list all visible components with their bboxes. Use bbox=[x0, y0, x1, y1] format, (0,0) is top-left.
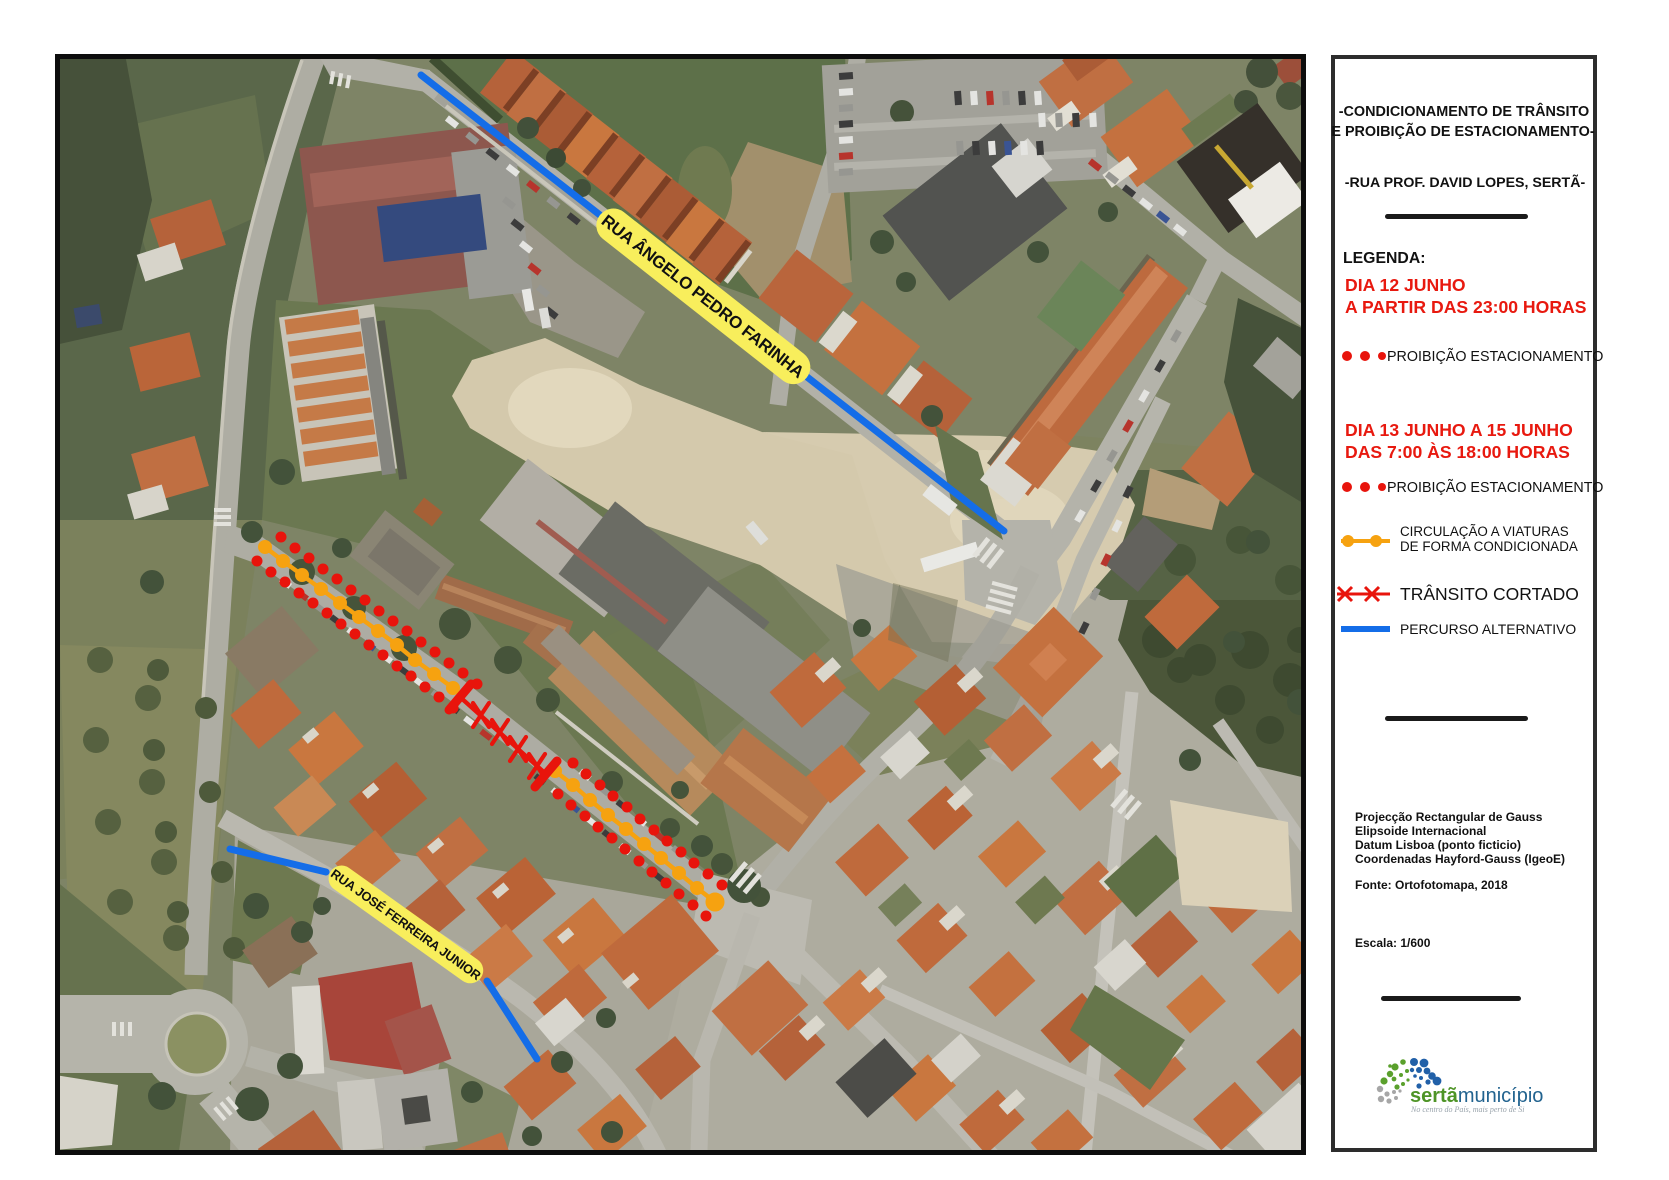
svg-text:PROIBIÇÃO ESTACIONAMENTO: PROIBIÇÃO ESTACIONAMENTO bbox=[1387, 348, 1603, 365]
svg-text:Datum Lisboa (ponto ficticio): Datum Lisboa (ponto ficticio) bbox=[1355, 838, 1521, 852]
svg-text:Coordenadas Hayford-Gauss (Ige: Coordenadas Hayford-Gauss (IgeoE) bbox=[1355, 852, 1565, 866]
svg-text:DAS 7:00 ÀS 18:00 HORAS: DAS 7:00 ÀS 18:00 HORAS bbox=[1345, 441, 1570, 462]
svg-text:Projecção Rectangular de Gauss: Projecção Rectangular de Gauss bbox=[1355, 810, 1543, 824]
svg-text:TRÂNSITO CORTADO: TRÂNSITO CORTADO bbox=[1400, 584, 1579, 604]
svg-text:No centro do País, mais perto: No centro do País, mais perto de Si bbox=[1410, 1105, 1524, 1114]
svg-text:PROIBIÇÃO ESTACIONAMENTO: PROIBIÇÃO ESTACIONAMENTO bbox=[1387, 479, 1603, 496]
svg-text:A PARTIR DAS 23:00 HORAS: A PARTIR DAS 23:00 HORAS bbox=[1345, 297, 1587, 317]
svg-text:LEGENDA:: LEGENDA: bbox=[1343, 250, 1426, 267]
svg-text:DIA 13 JUNHO A 15 JUNHO: DIA 13 JUNHO A 15 JUNHO bbox=[1345, 420, 1573, 440]
svg-text:DIA 12 JUNHO: DIA 12 JUNHO bbox=[1345, 275, 1466, 295]
svg-text:-CONDICIONAMENTO DE TRÂNSITO: -CONDICIONAMENTO DE TRÂNSITO bbox=[1339, 102, 1590, 120]
svg-text:CIRCULAÇÃO A VIATURAS: CIRCULAÇÃO A VIATURAS bbox=[1400, 524, 1569, 539]
svg-text:DE FORMA CONDICIONADA: DE FORMA CONDICIONADA bbox=[1400, 539, 1578, 554]
svg-text:sertãmunicípio: sertãmunicípio bbox=[1410, 1085, 1543, 1107]
svg-text:-RUA PROF. DAVID LOPES, SERTÃ-: -RUA PROF. DAVID LOPES, SERTÃ- bbox=[1345, 173, 1586, 191]
svg-text:Fonte: Ortofotomapa, 2018: Fonte: Ortofotomapa, 2018 bbox=[1355, 878, 1508, 892]
svg-text:E PROIBIÇÃO DE ESTACIONAMENTO-: E PROIBIÇÃO DE ESTACIONAMENTO- bbox=[1331, 122, 1595, 140]
svg-text:PERCURSO ALTERNATIVO: PERCURSO ALTERNATIVO bbox=[1400, 621, 1576, 637]
svg-text:Elipsoide Internacional: Elipsoide Internacional bbox=[1355, 824, 1486, 838]
svg-text:Escala: 1/600: Escala: 1/600 bbox=[1355, 936, 1431, 950]
